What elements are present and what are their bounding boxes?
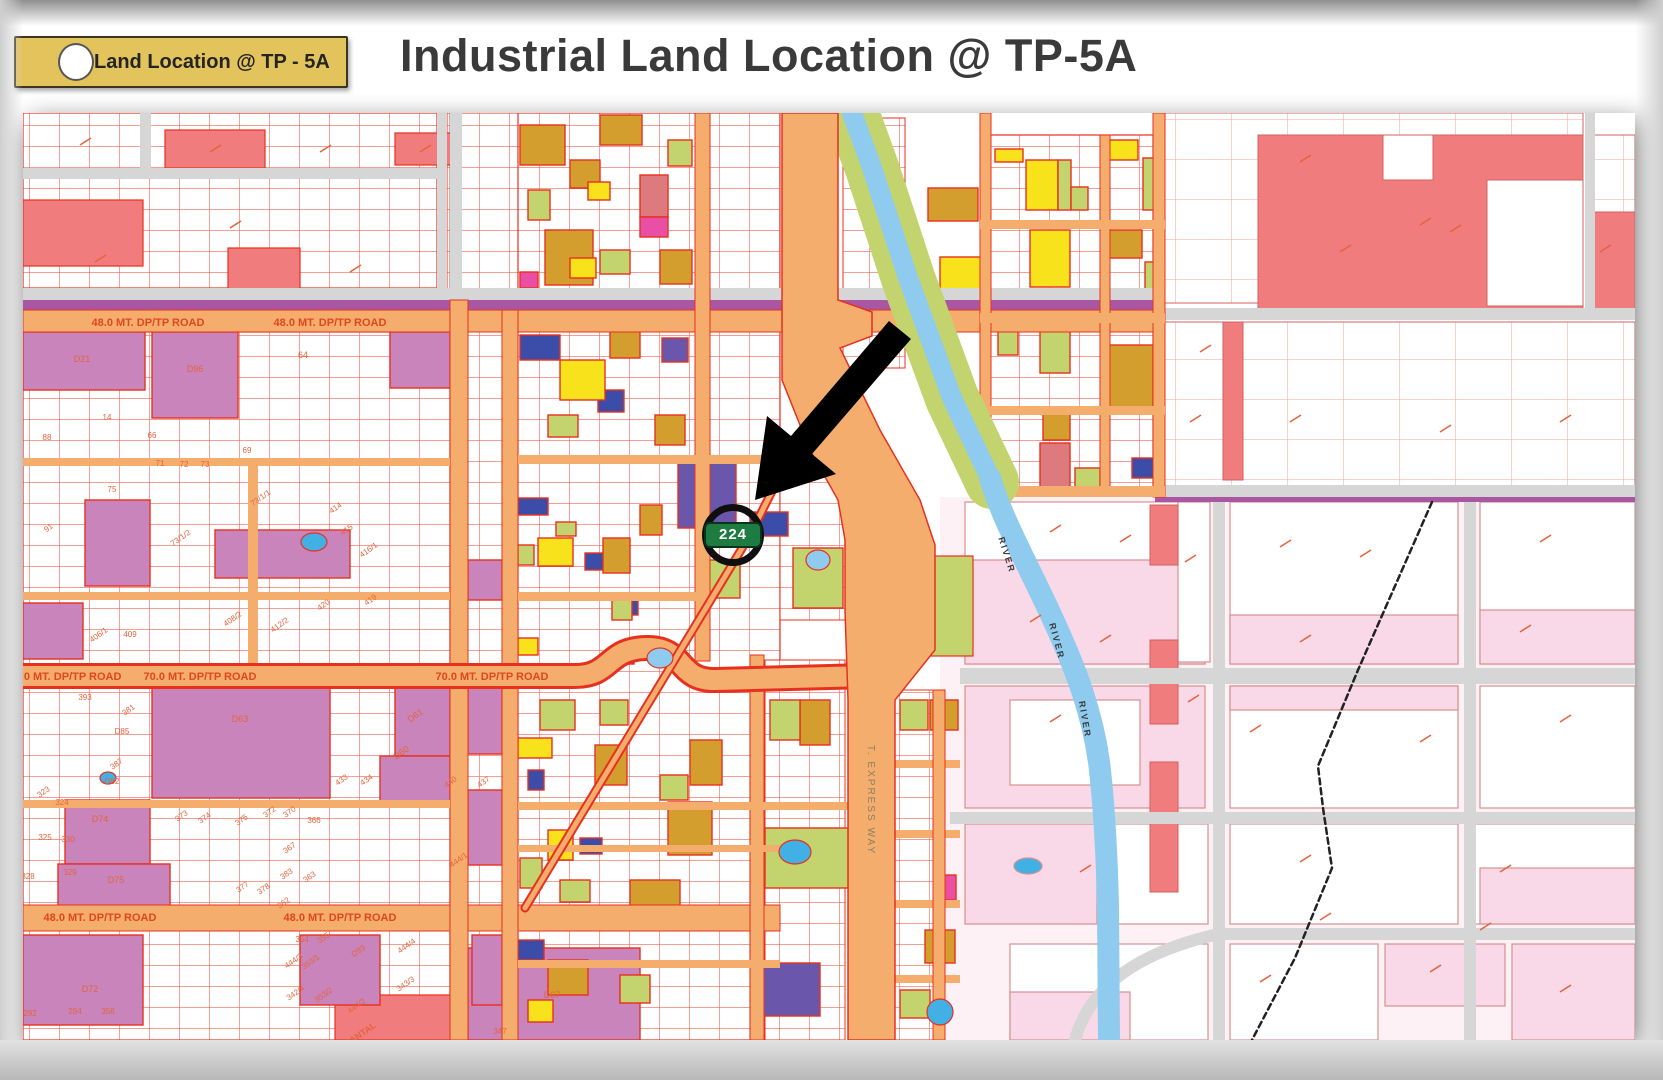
svg-text:366: 366 bbox=[307, 816, 321, 825]
svg-text:329: 329 bbox=[63, 868, 77, 877]
page-title: Industrial Land Location @ TP-5A bbox=[400, 30, 1137, 82]
svg-text:D74: D74 bbox=[92, 814, 109, 824]
legend-circle-icon bbox=[58, 43, 94, 81]
svg-text:D96: D96 bbox=[187, 364, 204, 374]
svg-text:D63: D63 bbox=[232, 714, 249, 724]
svg-text:325: 325 bbox=[38, 833, 52, 842]
svg-text:72: 72 bbox=[180, 460, 189, 469]
svg-text:393: 393 bbox=[78, 693, 92, 702]
svg-text:328: 328 bbox=[23, 872, 35, 881]
left-shade bbox=[0, 0, 23, 1080]
svg-text:70.0 MT. DP/TP ROAD: 70.0 MT. DP/TP ROAD bbox=[436, 671, 549, 683]
map-canvas[interactable]: 48.0 MT. DP/TP ROAD48.0 MT. DP/TP ROAD70… bbox=[23, 113, 1635, 1040]
svg-text:48.0 MT. DP/TP ROAD: 48.0 MT. DP/TP ROAD bbox=[284, 912, 397, 924]
slide: Land Location @ TP - 5A Industrial Land … bbox=[0, 0, 1663, 1080]
top-shade bbox=[0, 0, 1663, 26]
svg-text:354: 354 bbox=[295, 935, 309, 944]
svg-text:48.0 MT. DP/TP ROAD: 48.0 MT. DP/TP ROAD bbox=[44, 912, 157, 924]
svg-text:69: 69 bbox=[243, 446, 252, 455]
legend-label: Land Location @ TP - 5A bbox=[94, 51, 348, 74]
svg-text:D82: D82 bbox=[105, 777, 120, 786]
svg-text:D72: D72 bbox=[82, 984, 99, 994]
svg-text:324: 324 bbox=[55, 798, 69, 807]
svg-text:75: 75 bbox=[108, 485, 117, 494]
svg-text:292: 292 bbox=[23, 1009, 37, 1018]
svg-text:T. EXPRESS WAY: T. EXPRESS WAY bbox=[865, 745, 876, 855]
svg-text:347: 347 bbox=[493, 1027, 507, 1036]
svg-text:88: 88 bbox=[43, 433, 52, 442]
svg-text:409: 409 bbox=[123, 630, 137, 639]
svg-text:294: 294 bbox=[68, 1007, 82, 1016]
svg-text:71: 71 bbox=[156, 459, 165, 468]
land-use-map[interactable]: 48.0 MT. DP/TP ROAD48.0 MT. DP/TP ROAD70… bbox=[23, 113, 1635, 1040]
svg-text:70.0 MT. DP/TP ROAD: 70.0 MT. DP/TP ROAD bbox=[144, 671, 257, 683]
svg-text:73: 73 bbox=[201, 460, 210, 469]
svg-text:D21: D21 bbox=[74, 354, 91, 364]
bottom-shade bbox=[0, 1040, 1663, 1080]
svg-text:358: 358 bbox=[101, 1007, 115, 1016]
svg-text:D85: D85 bbox=[115, 727, 130, 736]
svg-text:64: 64 bbox=[298, 350, 308, 360]
svg-text:330: 330 bbox=[61, 835, 75, 844]
right-shade bbox=[1635, 0, 1663, 1080]
svg-text:48.0 MT. DP/TP ROAD: 48.0 MT. DP/TP ROAD bbox=[274, 317, 387, 329]
svg-text:D67: D67 bbox=[544, 990, 561, 1000]
svg-text:14: 14 bbox=[103, 413, 112, 422]
svg-text:70.0 MT. DP/TP ROAD: 70.0 MT. DP/TP ROAD bbox=[23, 671, 121, 683]
svg-text:48.0 MT. DP/TP ROAD: 48.0 MT. DP/TP ROAD bbox=[92, 317, 205, 329]
legend-badge: Land Location @ TP - 5A bbox=[14, 36, 348, 88]
svg-text:66: 66 bbox=[148, 431, 157, 440]
svg-text:D75: D75 bbox=[108, 875, 125, 885]
